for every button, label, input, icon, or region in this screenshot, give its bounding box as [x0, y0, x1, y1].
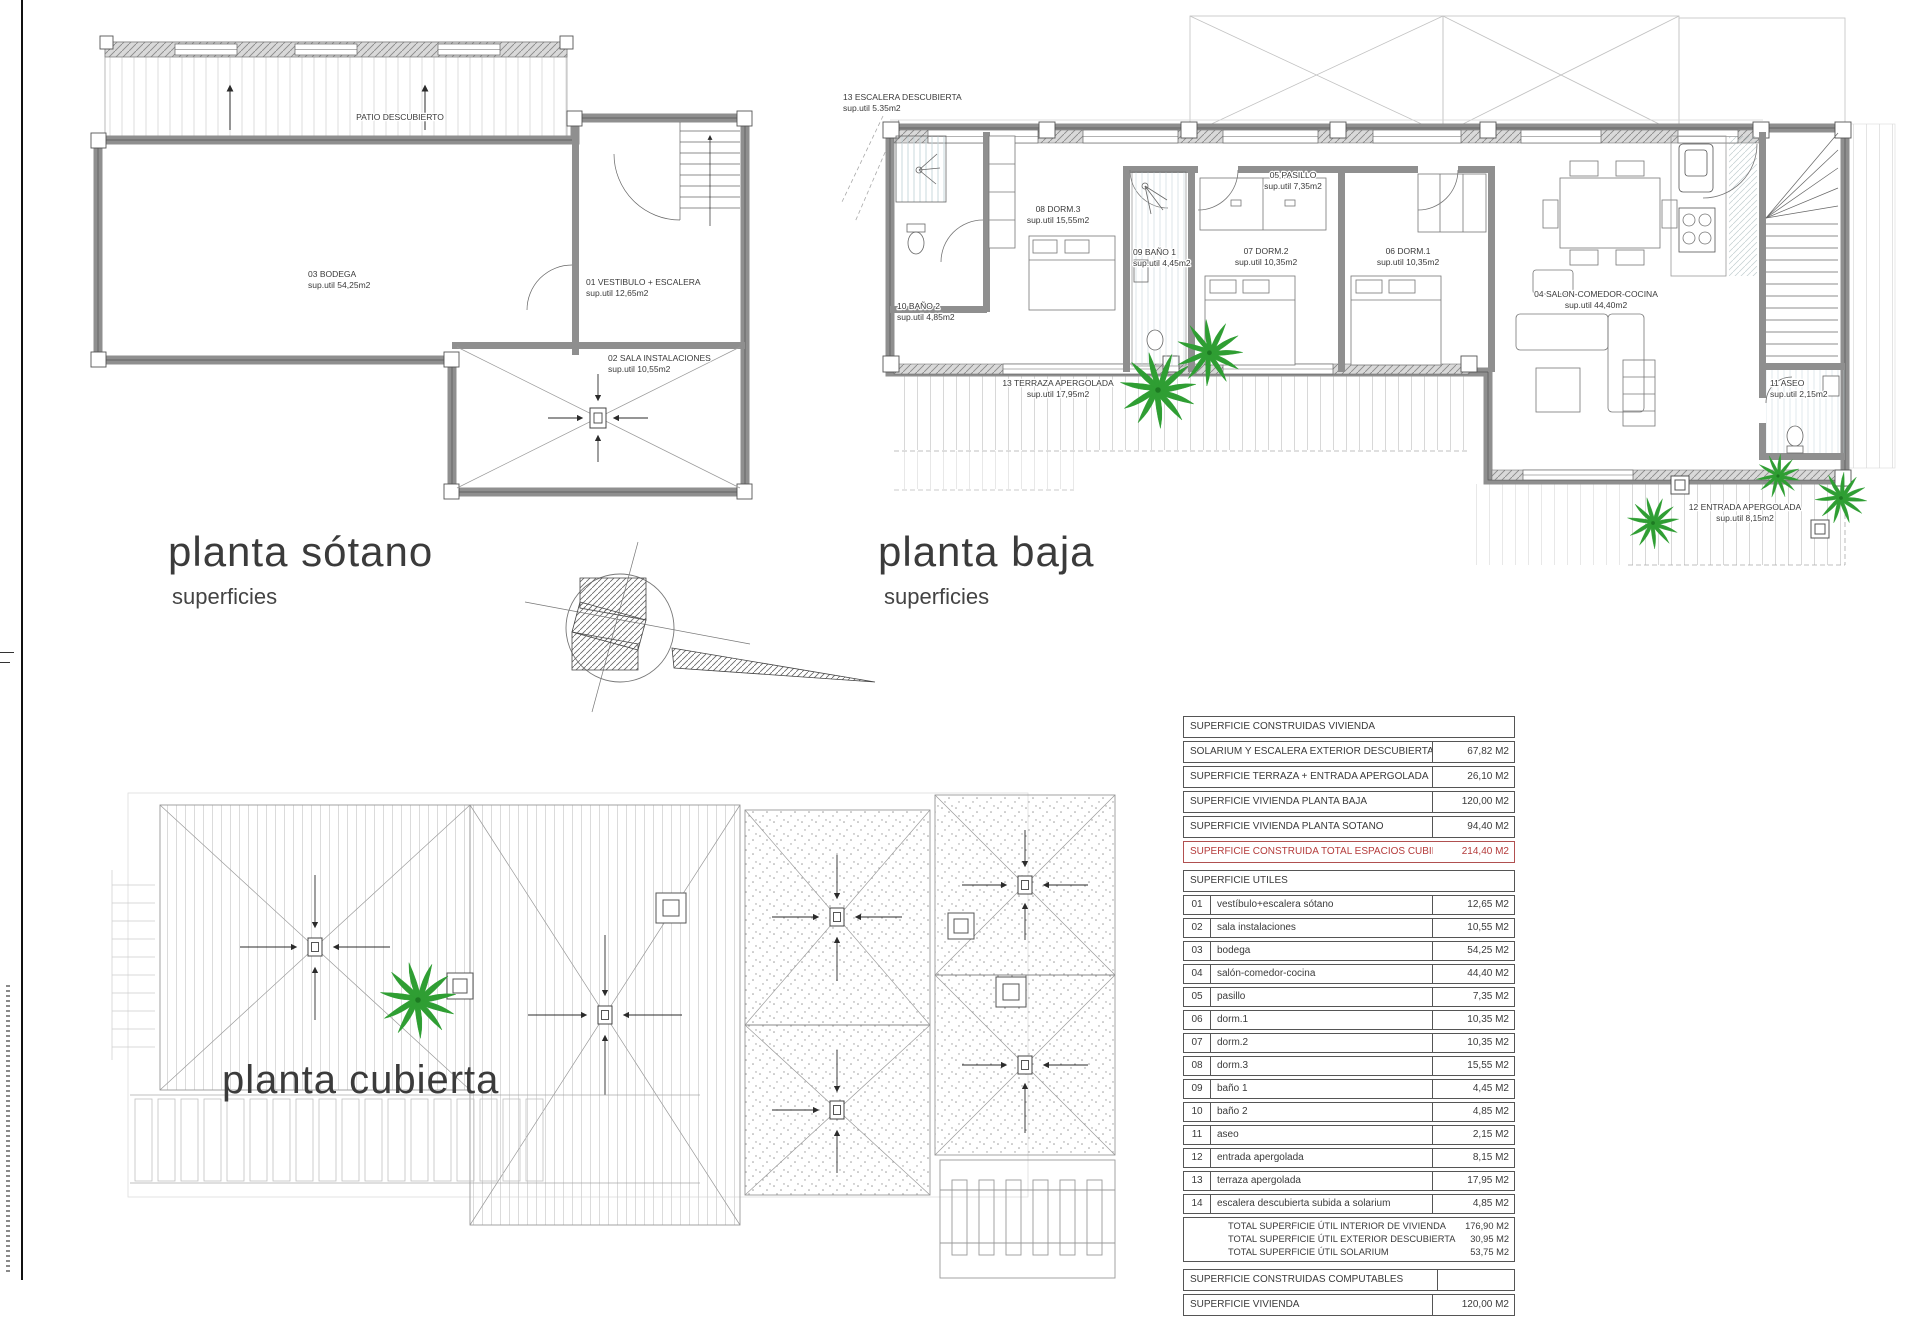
room-area-dorm2: sup.util 10,35m2 [1235, 257, 1298, 267]
roof-panel-b [470, 805, 740, 1225]
architectural-drawing-sheet: { "titles": { "sotano": {"title": "plant… [0, 0, 1920, 1280]
room-label-dorm1: 06 DORM.1 [1386, 246, 1431, 256]
room-area-salon: sup.util 44,40m2 [1565, 300, 1628, 310]
room-label-bodega: 03 BODEGA [308, 269, 357, 279]
row-label: salón-comedor-cocina [1211, 965, 1432, 983]
totals-row: TOTAL SUPERFICIE ÚTIL INTERIOR DE VIVIEN… [1184, 1220, 1514, 1233]
roof-panel-c [745, 810, 930, 1195]
table-row: 03 bodega 54,25 M2 [1183, 941, 1515, 961]
row-number: 03 [1184, 942, 1211, 960]
table-total-row: SUPERFICIE CONSTRUIDA TOTAL ESPACIOS CUB… [1183, 841, 1515, 863]
row-number: 10 [1184, 1103, 1211, 1121]
room-area-pasillo: sup.util 7,35m2 [1264, 181, 1322, 191]
row-number: 12 [1184, 1149, 1211, 1167]
plan-sotano: PATIO DESCUBIERTO 03 BODEGA sup.util 54, [80, 30, 770, 510]
table-body: 01 vestíbulo+escalera sótano 12,65 M2 02… [1183, 895, 1515, 1214]
row-label: pasillo [1211, 988, 1432, 1006]
terraza-apergolada [894, 374, 1469, 490]
total-value: 214,40 M2 [1433, 842, 1514, 862]
row-label: vestíbulo+escalera sótano [1211, 896, 1432, 914]
direction-arrow [672, 648, 875, 682]
row-label: SUPERFICIE VIVIENDA PLANTA BAJA [1184, 792, 1432, 812]
row-value: 4,45 M2 [1432, 1080, 1514, 1098]
table-header: SUPERFICIE CONSTRUIDAS COMPUTABLES [1183, 1269, 1515, 1291]
roof-panel-d [935, 795, 1115, 1155]
table-row: 11 aseo 2,15 M2 [1183, 1125, 1515, 1145]
room-label-salon: 04 SALON-COMEDOR-COCINA [1534, 289, 1658, 299]
row-number: 07 [1184, 1034, 1211, 1052]
room-area-terraza: sup.util 17,95m2 [1027, 389, 1090, 399]
top-facade [894, 130, 1759, 143]
row-label: bodega [1211, 942, 1432, 960]
room-area-aseo: sup.util 2,15m2 [1770, 389, 1828, 399]
room-area-sala: sup.util 10,55m2 [608, 364, 671, 374]
row-label: dorm.2 [1211, 1034, 1432, 1052]
margin-fine-print-strip [6, 985, 10, 1275]
table-row: SUPERFICIE TERRAZA + ENTRADA APERGOLADA … [1183, 766, 1515, 788]
table-row: 02 sala instalaciones 10,55 M2 [1183, 918, 1515, 938]
row-number: 05 [1184, 988, 1211, 1006]
title-planta-sotano: planta sótano [168, 528, 433, 576]
total-value: 176,90 M2 [1446, 1220, 1514, 1233]
room-label-bano1: 09 BAÑO 1 [1133, 247, 1176, 257]
table-header: SUPERFICIE CONSTRUIDAS VIVIENDA [1183, 716, 1515, 738]
wall [572, 122, 579, 355]
row-value: 10,35 M2 [1432, 1034, 1514, 1052]
row-label: dorm.1 [1211, 1011, 1432, 1029]
room-label-terraza: 13 TERRAZA APERGOLADA [1002, 378, 1114, 388]
row-number: 09 [1184, 1080, 1211, 1098]
table-row: 13 terraza apergolada 17,95 M2 [1183, 1171, 1515, 1191]
table-superficie-utiles: SUPERFICIE UTILES 01 vestíbulo+escalera … [1183, 870, 1515, 1262]
row-value: 2,15 M2 [1432, 1126, 1514, 1144]
table-row: 14 escalera descubierta subida a solariu… [1183, 1194, 1515, 1214]
room-area-bodega: sup.util 54,25m2 [308, 280, 371, 290]
table-row: 07 dorm.2 10,35 M2 [1183, 1033, 1515, 1053]
table-row: 12 entrada apergolada 8,15 M2 [1183, 1148, 1515, 1168]
totals-row: TOTAL SUPERFICIE ÚTIL SOLARIUM 53,75 M2 [1184, 1246, 1514, 1259]
room-area-entrada: sup.util 8,15m2 [1716, 513, 1774, 523]
total-label: SUPERFICIE CONSTRUIDA TOTAL ESPACIOS CUB… [1184, 842, 1433, 862]
table-row: SOLARIUM Y ESCALERA EXTERIOR DESCUBIERTA… [1183, 741, 1515, 763]
room-area-dorm1: sup.util 10,35m2 [1377, 257, 1440, 267]
bathroom1 [1132, 172, 1186, 366]
room-area-escalera: sup.util 5.35m2 [843, 103, 901, 113]
area-tables: SUPERFICIE CONSTRUIDAS VIVIENDA SOLARIUM… [1183, 716, 1515, 1323]
row-value: 44,40 M2 [1432, 965, 1514, 983]
row-value: 4,85 M2 [1432, 1103, 1514, 1121]
drain-icon [830, 1101, 844, 1119]
room-area-vestibulo: sup.util 12,65m2 [586, 288, 649, 298]
row-label: SOLARIUM Y ESCALERA EXTERIOR DESCUBIERTA [1184, 742, 1432, 762]
row-label: baño 1 [1211, 1080, 1432, 1098]
title-planta-baja: planta baja [878, 528, 1095, 576]
row-value: 10,35 M2 [1432, 1011, 1514, 1029]
table-row: 04 salón-comedor-cocina 44,40 M2 [1183, 964, 1515, 984]
table-row: SUPERFICIE VIVIENDA PLANTA SOTANO 94,40 … [1183, 816, 1515, 838]
row-number: 11 [1184, 1126, 1211, 1144]
row-number: 13 [1184, 1172, 1211, 1190]
row-value: 26,10 M2 [1432, 767, 1514, 787]
row-value: 120,00 M2 [1432, 1295, 1514, 1315]
row-label: sala instalaciones [1211, 919, 1432, 937]
row-label: baño 2 [1211, 1103, 1432, 1121]
table-row: 09 baño 1 4,45 M2 [1183, 1079, 1515, 1099]
row-value: 8,15 M2 [1432, 1149, 1514, 1167]
roof-panel-a [160, 805, 470, 1090]
row-value: 12,65 M2 [1432, 896, 1514, 914]
margin-tick [0, 662, 10, 663]
pergola-grid [940, 1160, 1115, 1278]
row-value: 120,00 M2 [1432, 792, 1514, 812]
table-superficie-construidas: SUPERFICIE CONSTRUIDAS VIVIENDA SOLARIUM… [1183, 716, 1515, 863]
room-label-sala: 02 SALA INSTALACIONES [608, 353, 711, 363]
patio-descubierto: PATIO DESCUBIERTO [105, 42, 567, 138]
room-label-escalera: 13 ESCALERA DESCUBIERTA [843, 92, 962, 102]
row-value: 17,95 M2 [1432, 1172, 1514, 1190]
table-row: 08 dorm.3 15,55 M2 [1183, 1056, 1515, 1076]
row-label: dorm.3 [1211, 1057, 1432, 1075]
room-label-pasillo: 05 PASILLO [1270, 170, 1317, 180]
table-body: SUPERFICIE VIVIENDA 120,00 M2 [1183, 1294, 1515, 1316]
room-label-dorm2: 07 DORM.2 [1244, 246, 1289, 256]
row-label: terraza apergolada [1211, 1172, 1432, 1190]
row-value: 54,25 M2 [1432, 942, 1514, 960]
drain-icon [308, 938, 322, 956]
title-planta-cubierta: planta cubierta [222, 1058, 499, 1103]
room-label-vestibulo: 01 VESTIBULO + ESCALERA [586, 277, 701, 287]
room-label-entrada: 12 ENTRADA APERGOLADA [1689, 502, 1802, 512]
row-number: 06 [1184, 1011, 1211, 1029]
row-label: aseo [1211, 1126, 1432, 1144]
table-header: SUPERFICIE UTILES [1183, 870, 1515, 892]
north-glyph [572, 578, 646, 670]
room-label-aseo: 11 ASEO [1770, 378, 1805, 388]
row-label: SUPERFICIE VIVIENDA [1184, 1295, 1432, 1315]
row-label: escalera descubierta subida a solarium [1211, 1195, 1432, 1213]
room-area-bano1: sup.util 4,45m2 [1133, 258, 1191, 268]
room-label-bano2: 10 BAÑO 2 [897, 301, 940, 311]
sheet-left-border [21, 0, 23, 1280]
totals-row: TOTAL SUPERFICIE ÚTIL EXTERIOR DESCUBIER… [1184, 1233, 1514, 1246]
room-area-bano2: sup.util 4,85m2 [897, 312, 955, 322]
row-value: 4,85 M2 [1432, 1195, 1514, 1213]
row-number: 02 [1184, 919, 1211, 937]
table-body: SOLARIUM Y ESCALERA EXTERIOR DESCUBIERTA… [1183, 741, 1515, 838]
row-label: SUPERFICIE TERRAZA + ENTRADA APERGOLADA [1184, 767, 1432, 787]
wall [452, 342, 745, 349]
total-label: TOTAL SUPERFICIE ÚTIL INTERIOR DE VIVIEN… [1184, 1220, 1446, 1233]
table-row: 01 vestíbulo+escalera sótano 12,65 M2 [1183, 895, 1515, 915]
basement-outer-wall [98, 118, 745, 492]
row-number: 01 [1184, 896, 1211, 914]
table-row: SUPERFICIE VIVIENDA PLANTA BAJA 120,00 M… [1183, 791, 1515, 813]
subtitle-baja: superficies [884, 584, 989, 610]
total-value: 53,75 M2 [1429, 1246, 1514, 1259]
drain-icon [830, 908, 844, 926]
roof-overhang [1849, 124, 1895, 468]
room-area-dorm3: sup.util 15,55m2 [1027, 215, 1090, 225]
table-row: 10 baño 2 4,85 M2 [1183, 1102, 1515, 1122]
stair-edge [112, 870, 155, 1060]
row-value: 7,35 M2 [1432, 988, 1514, 1006]
row-label: SUPERFICIE VIVIENDA PLANTA SOTANO [1184, 817, 1432, 837]
row-value: 67,82 M2 [1432, 742, 1514, 762]
margin-tick [0, 652, 14, 653]
patio-label: PATIO DESCUBIERTO [356, 112, 444, 122]
drain-icon [1018, 1056, 1032, 1074]
table-totals: TOTAL SUPERFICIE ÚTIL INTERIOR DE VIVIEN… [1183, 1217, 1515, 1262]
row-value: 94,40 M2 [1432, 817, 1514, 837]
row-number: 08 [1184, 1057, 1211, 1075]
table-row: SUPERFICIE VIVIENDA 120,00 M2 [1183, 1294, 1515, 1316]
plan-cubierta [100, 735, 1150, 1280]
row-value: 15,55 M2 [1432, 1057, 1514, 1075]
total-value: 30,95 M2 [1455, 1233, 1514, 1246]
total-label: TOTAL SUPERFICIE ÚTIL SOLARIUM [1184, 1246, 1429, 1259]
row-number: 04 [1184, 965, 1211, 983]
total-label: TOTAL SUPERFICIE ÚTIL EXTERIOR DESCUBIER… [1184, 1233, 1455, 1246]
drain-icon [598, 1006, 612, 1024]
solarium-roof-outline [890, 16, 1845, 134]
table-row: 06 dorm.1 10,35 M2 [1183, 1010, 1515, 1030]
drain-icon [590, 408, 606, 428]
row-value: 10,55 M2 [1432, 919, 1514, 937]
drain-icon [1018, 876, 1032, 894]
row-number: 14 [1184, 1195, 1211, 1213]
row-label: entrada apergolada [1211, 1149, 1432, 1167]
table-row: 05 pasillo 7,35 M2 [1183, 987, 1515, 1007]
room-label-dorm3: 08 DORM.3 [1036, 204, 1081, 214]
table-superficie-computables: SUPERFICIE CONSTRUIDAS COMPUTABLES SUPER… [1183, 1269, 1515, 1316]
subtitle-sotano: superficies [172, 584, 277, 610]
